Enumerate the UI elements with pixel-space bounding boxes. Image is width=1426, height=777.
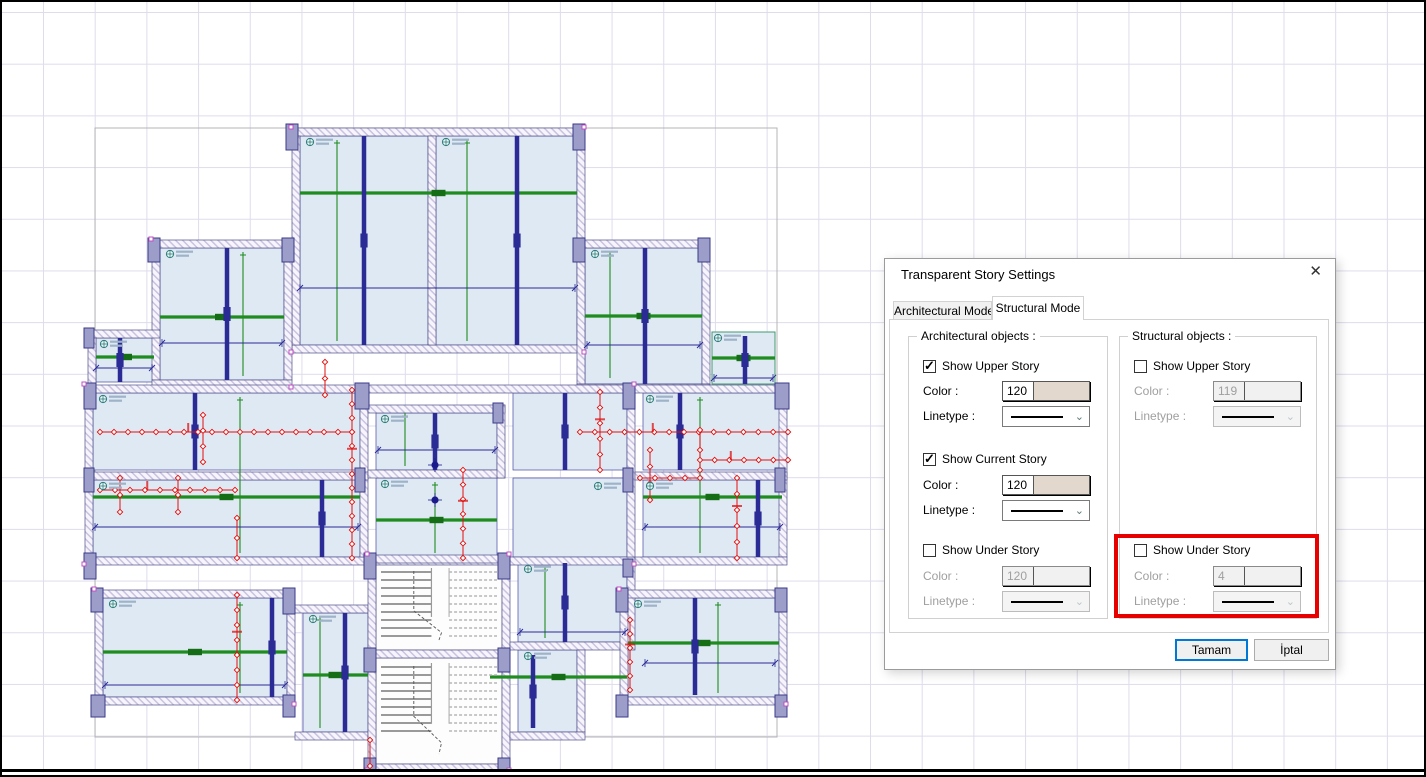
linetype-combo[interactable]: ⌄	[1002, 500, 1090, 521]
chevron-down-icon[interactable]: ⌄	[1075, 504, 1084, 518]
color-field: 120	[1002, 566, 1090, 586]
linetype-sample	[1011, 510, 1063, 512]
ok-button[interactable]: Tamam	[1175, 639, 1248, 661]
linetype-sample	[1011, 416, 1063, 418]
linetype-combo[interactable]: ⌄	[1002, 406, 1090, 427]
linetype-sample	[1011, 601, 1063, 603]
linetype-combo: ⌄	[1213, 406, 1301, 427]
tab-structural-mode[interactable]: Structural Mode	[992, 296, 1084, 320]
cancel-button[interactable]: İptal	[1254, 639, 1329, 661]
linetype-label: Linetype :	[923, 409, 975, 423]
transparent-story-settings-dialog: Transparent Story Settings ✕ Architectur…	[884, 258, 1336, 670]
color-label: Color :	[923, 569, 958, 583]
color-value: 119	[1214, 382, 1245, 400]
linetype-combo: ⌄	[1002, 591, 1090, 612]
color-value: 120	[1003, 476, 1034, 494]
chevron-down-icon[interactable]: ⌄	[1075, 410, 1084, 424]
linetype-sample	[1222, 416, 1274, 418]
show-under-story-label: Show Under Story	[942, 543, 1039, 557]
linetype-label: Linetype :	[1134, 409, 1186, 423]
color-value: 120	[1003, 382, 1034, 400]
linetype-label: Linetype :	[923, 503, 975, 517]
color-label: Color :	[923, 384, 958, 398]
architectural-objects-group: Architectural objects : Show Upper Story…	[908, 336, 1108, 619]
show-upper-story-label: Show Upper Story	[942, 359, 1039, 373]
tab-architectural-mode[interactable]: Architectural Mode	[893, 301, 992, 320]
linetype-label: Linetype :	[923, 594, 975, 608]
window-bottom-edge	[0, 769, 1426, 772]
color-field[interactable]: 120	[1002, 381, 1090, 401]
color-field[interactable]: 120	[1002, 475, 1090, 495]
window-bottom-margin	[0, 772, 1426, 777]
chevron-down-icon: ⌄	[1286, 410, 1295, 424]
show-upper-story-label: Show Upper Story	[1153, 359, 1250, 373]
dialog-title: Transparent Story Settings	[901, 267, 1055, 282]
color-swatch[interactable]	[1034, 476, 1089, 494]
show-upper-story-checkbox[interactable]	[1134, 360, 1147, 373]
color-swatch	[1245, 382, 1300, 400]
group-title: Structural objects :	[1128, 329, 1235, 343]
app-window: Transparent Story Settings ✕ Architectur…	[0, 0, 1426, 777]
color-label: Color :	[923, 478, 958, 492]
color-swatch	[1034, 567, 1089, 585]
color-swatch[interactable]	[1034, 382, 1089, 400]
color-value: 120	[1003, 567, 1034, 585]
show-current-story-label: Show Current Story	[942, 452, 1047, 466]
group-title: Architectural objects :	[917, 329, 1040, 343]
show-under-story-checkbox[interactable]	[923, 544, 936, 557]
color-field: 119	[1213, 381, 1301, 401]
highlight-rectangle	[1114, 534, 1319, 618]
close-icon[interactable]: ✕	[1309, 264, 1322, 280]
show-current-story-checkbox[interactable]	[923, 453, 936, 466]
show-upper-story-checkbox[interactable]	[923, 360, 936, 373]
chevron-down-icon: ⌄	[1075, 595, 1084, 609]
color-label: Color :	[1134, 384, 1169, 398]
